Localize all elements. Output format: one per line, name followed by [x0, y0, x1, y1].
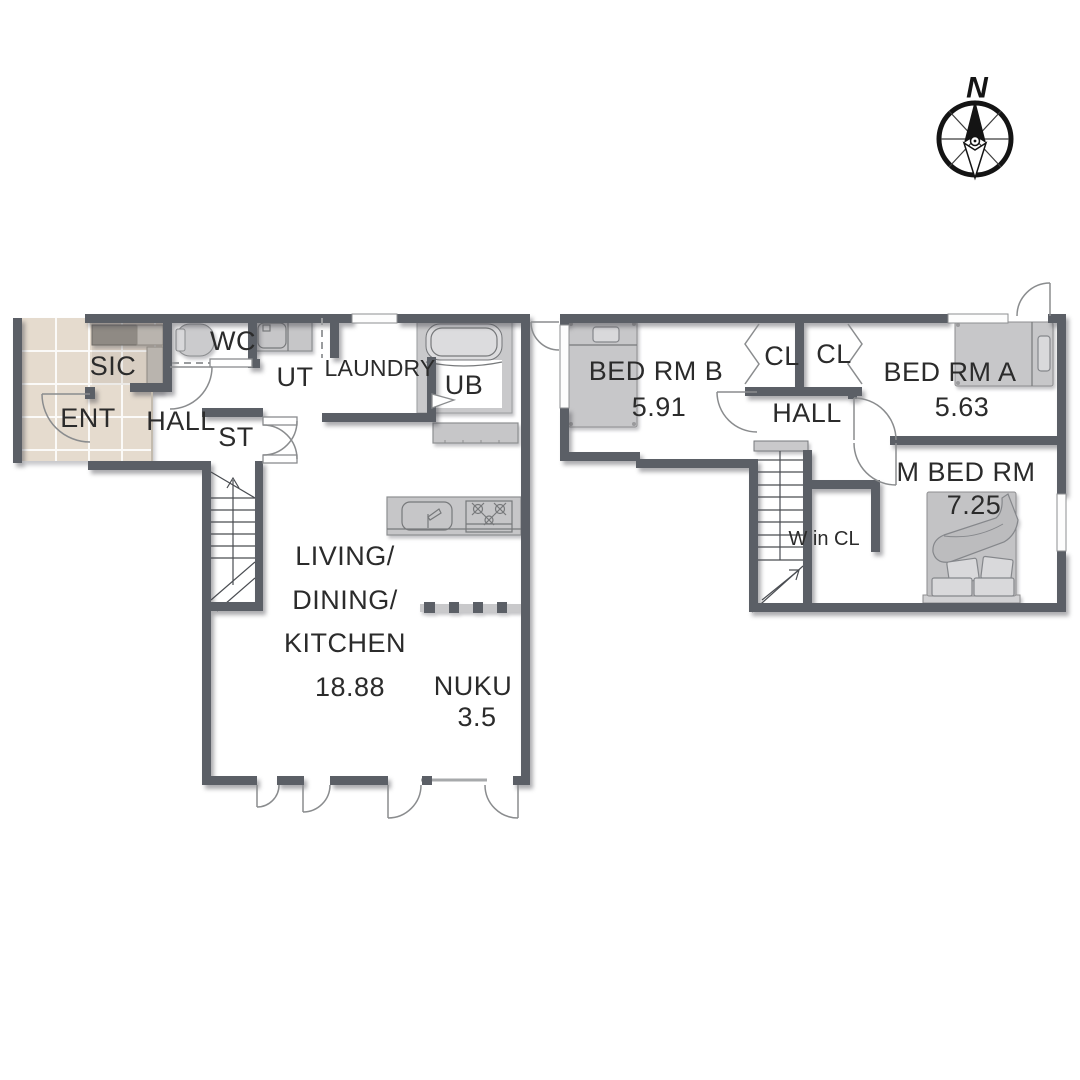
room-area-nuku: 3.5 — [457, 702, 496, 732]
room-label-ldk-line1: LIVING/ — [295, 541, 395, 571]
room-label-hall-2f: HALL — [772, 398, 842, 428]
window-master-bedroom — [1057, 494, 1066, 551]
floor-plan-page: SIC WC ENT HALL UT LAUNDRY UB ST LIVING/… — [0, 0, 1080, 1080]
wc-sliding-door — [210, 359, 252, 367]
closet-bifold-left — [745, 324, 759, 384]
room-area-bedroom-a: 5.63 — [935, 392, 990, 422]
compass-north-label: N — [966, 72, 989, 105]
room-label-master-bedroom: M BED RM — [897, 457, 1036, 487]
room-label-ldk-line3: KITCHEN — [284, 628, 406, 658]
first-floor-plan: SIC WC ENT HALL UT LAUNDRY UB ST LIVING/… — [13, 314, 530, 818]
room-label-sic: SIC — [90, 351, 137, 381]
room-area-ldk: 18.88 — [315, 672, 385, 702]
floor-plan-canvas: SIC WC ENT HALL UT LAUNDRY UB ST LIVING/… — [0, 0, 1080, 1080]
window-bedroom-a — [948, 314, 1008, 323]
room-area-master-bedroom: 7.25 — [947, 490, 1002, 520]
balcony-door-left-arc — [531, 322, 559, 350]
cupboard — [433, 423, 518, 443]
room-label-ut: UT — [277, 362, 314, 392]
room-label-closet-left: CL — [764, 341, 800, 371]
window-laundry — [352, 314, 397, 323]
bedroom-a-door-arc — [854, 398, 896, 440]
room-label-wc: WC — [210, 326, 256, 356]
room-label-hall-1f: HALL — [146, 406, 216, 436]
room-label-nuku: NUKU — [434, 671, 513, 701]
master-bedroom-door-arc — [854, 443, 896, 485]
compass-icon: N — [939, 72, 1011, 179]
bedroom-b-door-arc — [717, 392, 757, 432]
window-bedroom-b — [560, 325, 569, 408]
room-label-st: ST — [218, 422, 254, 452]
toilet-icon — [176, 324, 214, 356]
staircase-first-floor — [211, 472, 255, 611]
room-label-ent: ENT — [60, 403, 116, 433]
room-label-laundry: LAUNDRY — [325, 355, 436, 381]
room-label-walk-in-closet: W in CL — [788, 528, 859, 550]
room-label-ldk-line2: DINING/ — [292, 585, 398, 615]
kitchen-counter — [387, 497, 521, 535]
room-label-closet-right: CL — [816, 339, 852, 369]
hall-door-arc — [170, 367, 212, 409]
nuku-post-rail — [420, 602, 521, 613]
room-label-bedroom-a: BED RM A — [883, 357, 1016, 387]
room-label-bedroom-b: BED RM B — [589, 356, 724, 386]
second-floor-plan: BED RM B 5.91 CL CL BED RM A 5.63 HALL M… — [531, 283, 1066, 612]
washbasin-icon — [255, 320, 312, 351]
room-area-bedroom-b: 5.91 — [632, 392, 687, 422]
room-label-ub: UB — [445, 370, 484, 400]
balcony-door-right-arc — [1017, 283, 1050, 316]
stair-handrail — [754, 441, 808, 451]
